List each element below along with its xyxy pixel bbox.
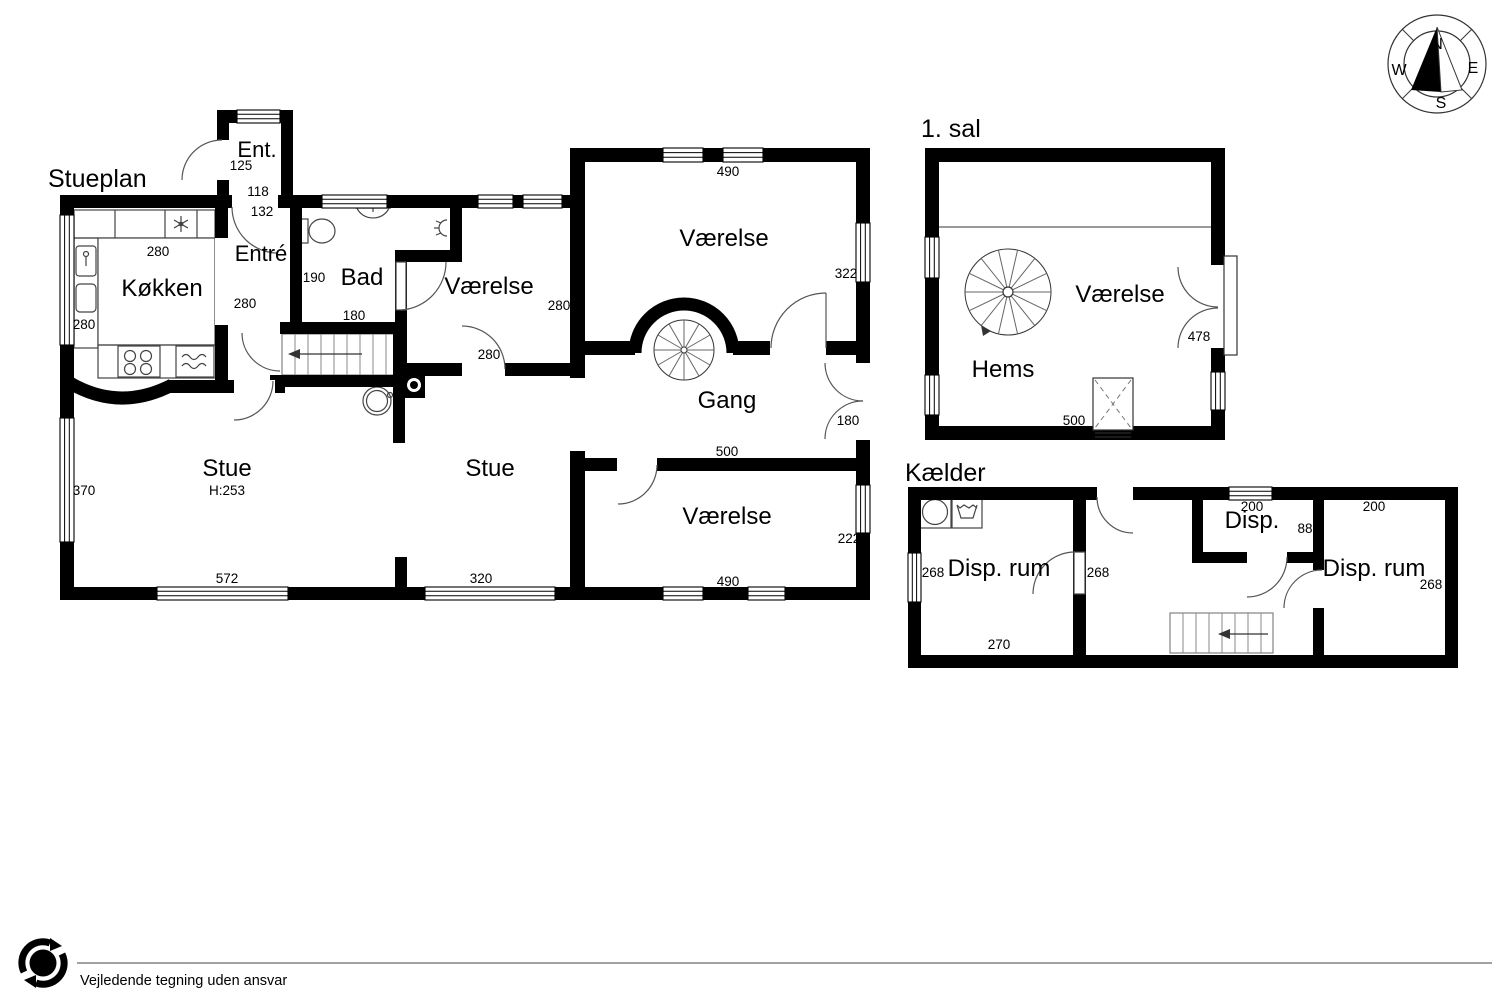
dim-kaelder-268-mid: 268 <box>1087 565 1110 580</box>
dim-stue-370: 370 <box>73 483 96 498</box>
footer-disclaimer: Vejledende tegning uden ansvar <box>80 973 287 989</box>
dim-gang-180: 180 <box>837 413 860 428</box>
basement-fixtures <box>919 497 982 528</box>
laundry-sink-icon <box>952 497 982 528</box>
dim-kaelder-268-left: 268 <box>922 565 945 580</box>
dim-1sal-500: 500 <box>1063 413 1086 428</box>
ground-staircase <box>282 334 398 375</box>
dim-gang-500: 500 <box>716 444 739 459</box>
first-floor-windows <box>925 237 1225 415</box>
door-leaf <box>1074 552 1085 594</box>
dim-kaelder-200-right: 200 <box>1363 499 1386 514</box>
logo-letter: e <box>37 953 49 976</box>
washing-machine-icon <box>919 497 951 528</box>
room-disp-rum-left: Disp. rum <box>948 555 1051 582</box>
compass-s: S <box>1436 95 1447 112</box>
spiral-direction-arrow <box>981 325 991 336</box>
dishwasher-icon <box>176 346 214 377</box>
dim-kokken-top-280: 280 <box>147 244 170 259</box>
title-stueplan: Stueplan <box>48 165 147 193</box>
compass-w: W <box>1391 62 1407 79</box>
dim-ent-125: 125 <box>230 158 253 173</box>
dim-stue-572: 572 <box>216 571 239 586</box>
dim-1sal-478: 478 <box>1188 329 1211 344</box>
dim-vaerelse-left-e-280: 280 <box>548 298 571 313</box>
text-layer: StueplanEnt.125118132EntréKøkken28028028… <box>37 36 1478 989</box>
room-disp-rum-right: Disp. rum <box>1323 555 1426 582</box>
fridge-snowflake-icon <box>174 216 188 232</box>
dim-disp-200: 200 <box>1241 499 1264 514</box>
room-vaerelse-bottom: Værelse <box>682 503 771 530</box>
dim-disp-88: 88 <box>1297 521 1312 536</box>
dim-kokken-left-280: 280 <box>73 317 96 332</box>
room-vaerelse-1sal: Værelse <box>1075 281 1164 308</box>
dim-entre-132: 132 <box>251 204 274 219</box>
room-hems: Hems <box>972 356 1035 383</box>
room-stue-1: Stue <box>202 455 251 482</box>
dim-vaerelse-top-490: 490 <box>717 164 740 179</box>
wood-stove-icon <box>363 387 393 415</box>
dim-vaerelse-left-s-280: 280 <box>478 347 501 362</box>
first-floor-spiral-staircase <box>965 249 1051 336</box>
dim-bad-190: 190 <box>303 270 326 285</box>
title-first-floor: 1. sal <box>921 115 981 143</box>
balcony-landing <box>1224 256 1237 355</box>
dim-kokken-east-280: 280 <box>234 296 257 311</box>
room-entre: Entré <box>235 241 288 266</box>
dim-stue-h253: H:253 <box>209 483 245 498</box>
dim-kaelder-270: 270 <box>988 637 1011 652</box>
room-vaerelse-top: Værelse <box>679 225 768 252</box>
dim-ent-118: 118 <box>247 184 269 199</box>
door-leaf <box>396 262 406 310</box>
room-bad: Bad <box>341 264 384 291</box>
dim-vaerelse-top-322: 322 <box>835 266 858 281</box>
chimney-icon <box>403 373 425 398</box>
room-vaerelse-left: Værelse <box>444 273 533 300</box>
stove-icon <box>118 346 160 377</box>
ground-spiral-staircase <box>654 320 714 380</box>
dim-stue2-320: 320 <box>470 571 493 586</box>
room-stue-2: Stue <box>465 455 514 482</box>
room-gang: Gang <box>698 387 757 414</box>
wall-lamp-icon <box>434 220 447 236</box>
toilet-icon <box>297 219 335 243</box>
dim-kaelder-268-right: 268 <box>1420 577 1443 592</box>
title-basement: Kælder <box>905 459 986 487</box>
dim-vaerelse-bottom-490: 490 <box>717 574 740 589</box>
basement-staircase <box>1170 613 1273 653</box>
oven-icon <box>76 284 96 312</box>
dim-vaerelse-bottom-222: 222 <box>838 531 861 546</box>
room-kokken: Køkken <box>121 275 202 302</box>
compass-n: N <box>1431 36 1443 53</box>
compass-e: E <box>1468 60 1479 77</box>
floor-plan-page: StueplanEnt.125118132EntréKøkken28028028… <box>0 0 1500 1000</box>
stueplan-openings <box>215 140 870 471</box>
dim-bad-180: 180 <box>343 308 366 323</box>
roof-window-chimney-icon <box>1093 378 1133 437</box>
